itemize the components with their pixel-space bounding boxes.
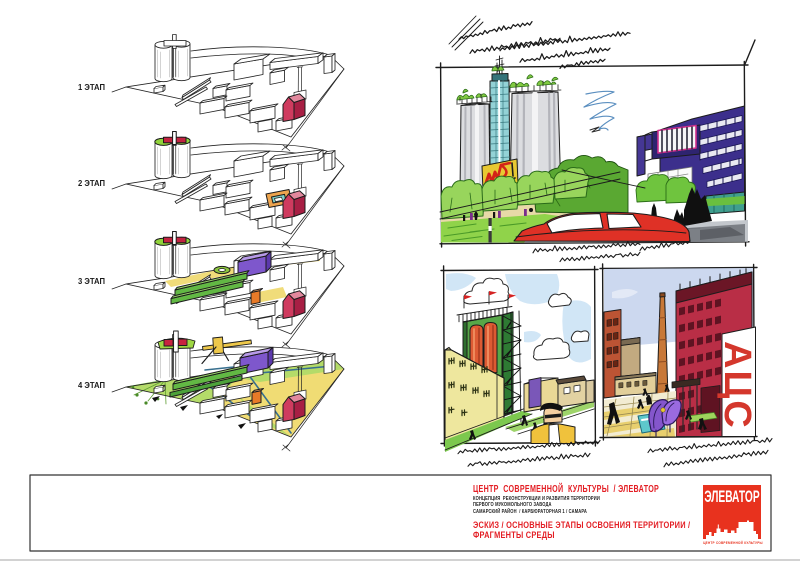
svg-text:1 ЭТАП: 1 ЭТАП bbox=[78, 82, 105, 92]
svg-text:2 ЭТАП: 2 ЭТАП bbox=[78, 178, 105, 188]
svg-text:4 ЭТАП: 4 ЭТАП bbox=[78, 380, 105, 390]
svg-text:3 ЭТАП: 3 ЭТАП bbox=[78, 276, 105, 286]
svg-text:АЦС: АЦС bbox=[716, 341, 758, 430]
